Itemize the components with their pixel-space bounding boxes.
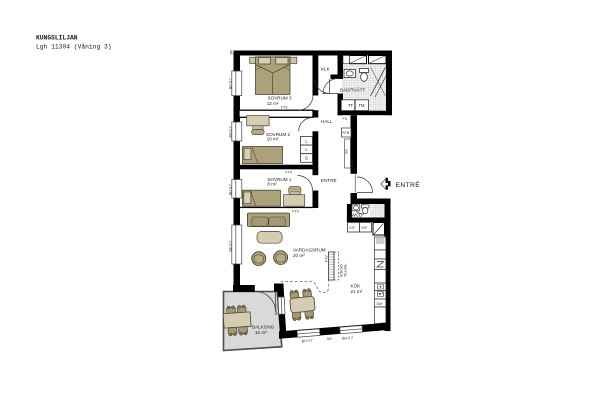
svg-text:K/F: K/F bbox=[362, 226, 368, 230]
svg-text:ENTRÉ: ENTRÉ bbox=[321, 177, 337, 183]
svg-text:G: G bbox=[305, 156, 308, 161]
svg-text:VARDAGSRUM: VARDAGSRUM bbox=[293, 248, 326, 253]
svg-text:BH 0,7: BH 0,7 bbox=[229, 184, 233, 195]
svg-text:ENTRÉ: ENTRÉ bbox=[396, 180, 421, 189]
svg-text:20 m²: 20 m² bbox=[293, 253, 305, 258]
svg-text:FTV: FTV bbox=[325, 255, 329, 262]
svg-text:HALL: HALL bbox=[321, 119, 333, 124]
svg-text:TILLVAL: TILLVAL bbox=[344, 264, 348, 277]
svg-text:BH 0,7: BH 0,7 bbox=[229, 127, 233, 138]
svg-text:FTV: FTV bbox=[281, 106, 288, 110]
svg-text:12 m²: 12 m² bbox=[267, 101, 279, 106]
svg-text:BH 0,7: BH 0,7 bbox=[229, 78, 233, 89]
svg-text:KÖK: KÖK bbox=[351, 283, 362, 289]
svg-text:K/F: K/F bbox=[350, 226, 356, 230]
svg-text:BH 0,7: BH 0,7 bbox=[229, 241, 233, 252]
svg-text:10 m²: 10 m² bbox=[267, 137, 279, 142]
svg-text:EL/IT: EL/IT bbox=[350, 158, 354, 167]
svg-text:SR: SR bbox=[327, 337, 333, 341]
svg-text:SS: SS bbox=[344, 149, 348, 154]
svg-text:KUNGSLILJAN: KUNGSLILJAN bbox=[36, 35, 78, 42]
svg-text:FS: FS bbox=[343, 117, 348, 121]
svg-text:WCD: WCD bbox=[352, 213, 364, 218]
svg-text:DM: DM bbox=[377, 302, 383, 306]
svg-text:SR: SR bbox=[230, 50, 234, 55]
svg-text:21 m²: 21 m² bbox=[351, 289, 363, 294]
svg-text:TT: TT bbox=[348, 103, 354, 108]
svg-text:8 m²: 8 m² bbox=[267, 181, 277, 186]
svg-text:10 m²: 10 m² bbox=[255, 330, 267, 335]
svg-text:Lgh 11304 (Våning 3): Lgh 11304 (Våning 3) bbox=[36, 43, 112, 51]
svg-text:SOVRUM 3: SOVRUM 3 bbox=[268, 96, 292, 101]
svg-text:KLK: KLK bbox=[321, 67, 331, 72]
svg-text:BAD/TVÄTT: BAD/TVÄTT bbox=[340, 87, 365, 93]
svg-text:FTV: FTV bbox=[286, 170, 293, 174]
svg-text:FTV: FTV bbox=[292, 209, 299, 213]
svg-text:BALKONG: BALKONG bbox=[252, 325, 275, 330]
svg-text:TM: TM bbox=[359, 103, 366, 108]
svg-text:STB: STB bbox=[342, 131, 350, 135]
